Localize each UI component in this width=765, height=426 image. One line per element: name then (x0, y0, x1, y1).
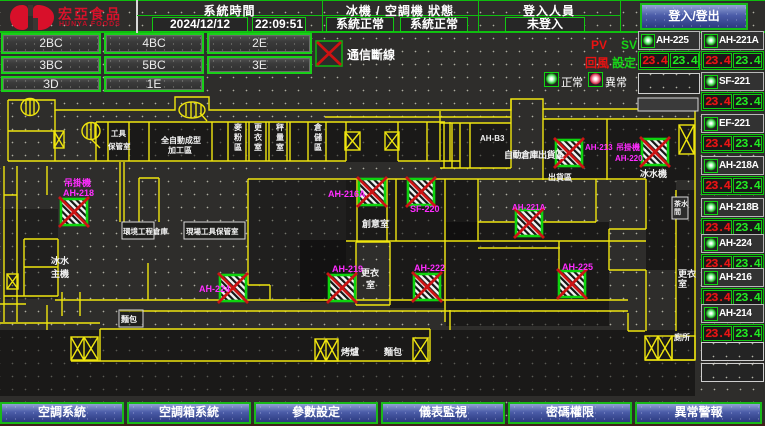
svg-text:間: 間 (674, 207, 681, 216)
svg-text:茶水: 茶水 (673, 199, 689, 208)
svg-text:區: 區 (314, 143, 322, 152)
svg-text:AH-221A: AH-221A (512, 203, 546, 212)
svg-text:量: 量 (276, 132, 284, 142)
svg-text:室: 室 (366, 279, 375, 290)
svg-text:廁所: 廁所 (674, 332, 690, 342)
svg-text:室: 室 (678, 278, 687, 289)
svg-text:AH-224: AH-224 (199, 284, 230, 294)
svg-text:AH-225: AH-225 (562, 262, 593, 272)
svg-text:加工區: 加工區 (167, 145, 192, 155)
svg-text:AH-218: AH-218 (63, 188, 94, 198)
svg-text:SF-220: SF-220 (410, 204, 440, 214)
svg-text:冰水: 冰水 (51, 255, 70, 266)
svg-text:衣: 衣 (254, 132, 262, 142)
svg-text:主機: 主機 (51, 268, 69, 279)
svg-text:創意室: 創意室 (361, 218, 389, 229)
svg-text:麵包: 麵包 (120, 314, 137, 324)
svg-text:AH-216A: AH-216A (328, 189, 366, 199)
svg-text:AH-222: AH-222 (414, 263, 445, 273)
svg-text:麥: 麥 (233, 122, 243, 132)
svg-text:出貨區: 出貨區 (548, 172, 572, 182)
svg-text:自動倉庫出貨區: 自動倉庫出貨區 (504, 149, 564, 160)
svg-text:室: 室 (276, 142, 284, 152)
svg-text:全自動成型: 全自動成型 (160, 135, 201, 145)
svg-text:粉: 粉 (234, 132, 242, 142)
svg-text:秤: 秤 (276, 122, 284, 132)
svg-text:AH-213: AH-213 (585, 143, 613, 152)
svg-text:保管室: 保管室 (107, 141, 131, 151)
svg-text:倉: 倉 (313, 122, 323, 132)
svg-text:AH-B3: AH-B3 (480, 134, 505, 143)
svg-text:工具: 工具 (111, 129, 126, 138)
svg-text:更衣: 更衣 (678, 268, 696, 279)
svg-text:更: 更 (254, 122, 263, 132)
svg-text:區: 區 (234, 143, 242, 152)
svg-text:現場工具保管室: 現場工具保管室 (186, 226, 239, 236)
svg-text:室: 室 (254, 142, 262, 152)
svg-text:環境工程倉庫: 環境工程倉庫 (123, 226, 168, 236)
svg-text:AH-219: AH-219 (332, 264, 363, 274)
svg-text:吊掛機: 吊掛機 (616, 142, 640, 152)
svg-text:烤爐: 烤爐 (341, 346, 359, 357)
svg-text:吊掛機: 吊掛機 (64, 177, 91, 188)
svg-text:儲: 儲 (313, 132, 322, 142)
svg-text:冰水機: 冰水機 (640, 168, 667, 179)
svg-text:麵包: 麵包 (383, 346, 402, 357)
svg-text:AH-220: AH-220 (615, 154, 643, 163)
svg-text:更衣: 更衣 (361, 267, 379, 278)
